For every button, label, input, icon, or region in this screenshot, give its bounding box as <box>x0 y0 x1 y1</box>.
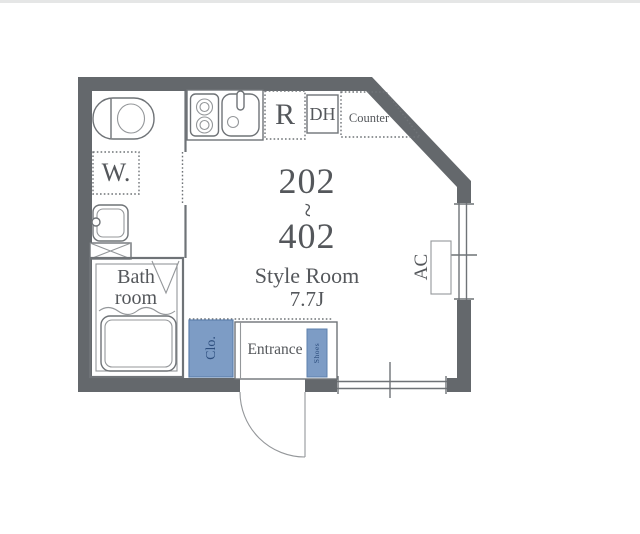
ac-unit <box>431 241 451 294</box>
room-name: Style Room <box>224 265 390 287</box>
toilet-icon <box>93 98 154 139</box>
floor-plan: 202 ~ 402 Style Room 7.7J W. R DH Counte… <box>0 0 640 534</box>
shoes-label: Shoes <box>312 331 322 375</box>
partition-walls <box>183 91 186 258</box>
washer-label: W. <box>93 152 139 194</box>
entrance-label: Entrance <box>242 341 308 359</box>
dh-label: DH <box>307 95 338 133</box>
closet-label: Clo. <box>202 326 222 370</box>
bottom-window <box>337 362 447 398</box>
bathroom-label: Bath room <box>106 266 166 310</box>
counter-label: Counter <box>341 110 397 126</box>
entry-door-swing <box>240 392 305 457</box>
bathtub-icon <box>99 308 176 372</box>
unit-number-first: 202 <box>257 166 357 196</box>
room-size: 7.7J <box>224 289 390 309</box>
unit-number-last: 402 <box>257 221 357 251</box>
kitchen-counter <box>187 90 263 140</box>
washbasin-icon <box>92 205 128 241</box>
fridge-label: R <box>265 91 305 139</box>
ac-label: AC <box>411 245 431 289</box>
cabinet-icon <box>90 243 131 259</box>
